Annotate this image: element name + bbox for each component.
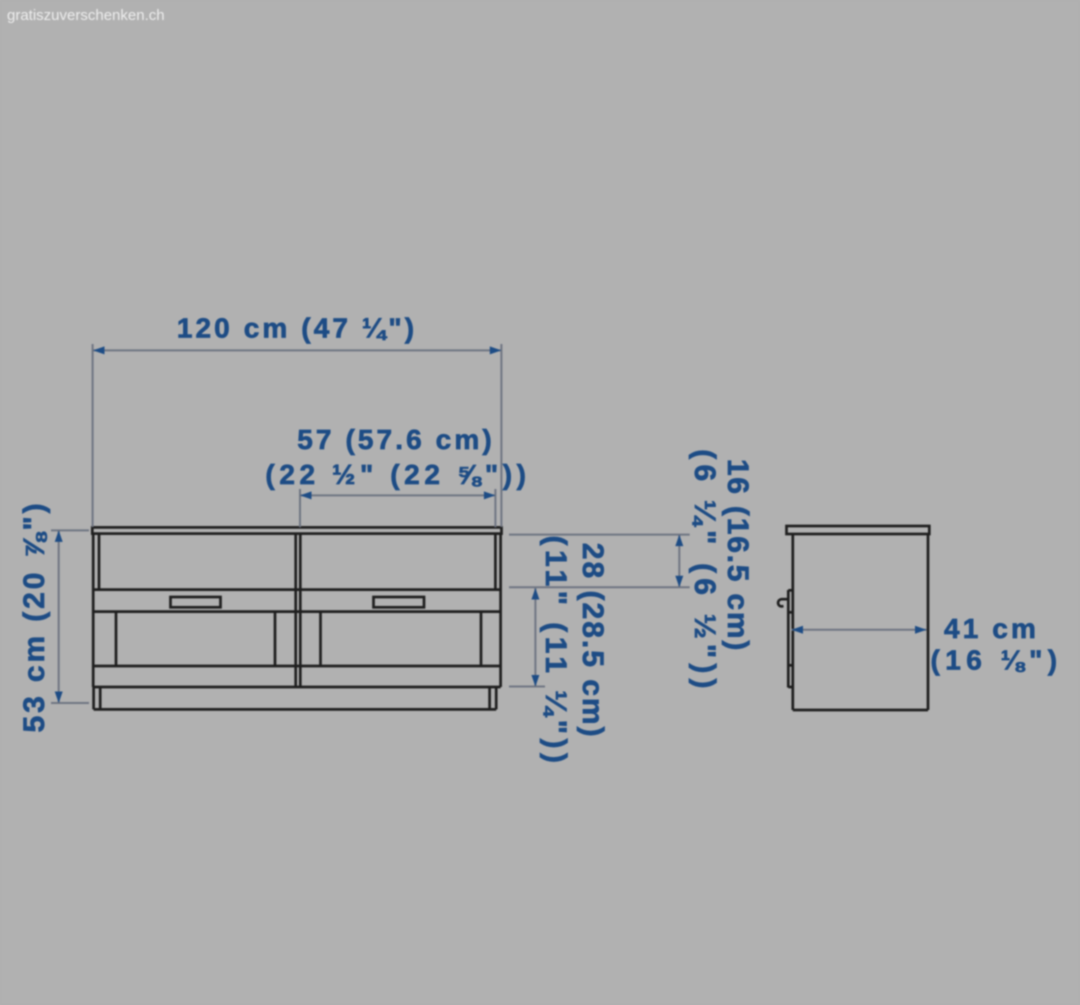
svg-text:41 cm: 41 cm <box>944 613 1039 644</box>
svg-text:120 cm (47 ¼"): 120 cm (47 ¼") <box>177 312 417 343</box>
svg-text:(6 ¼" (6 ½")): (6 ¼" (6 ½")) <box>688 449 721 693</box>
svg-text:16 (16.5 cm): 16 (16.5 cm) <box>721 459 754 652</box>
svg-text:53 cm (20 ⅞"): 53 cm (20 ⅞") <box>18 500 51 732</box>
svg-text:57 (57.6 cm): 57 (57.6 cm) <box>297 424 495 455</box>
svg-text:(22 ½" (22 ⅝")): (22 ½" (22 ⅝")) <box>265 459 530 490</box>
svg-text:gratiszuverschenken.ch: gratiszuverschenken.ch <box>7 7 165 24</box>
svg-text:28 (28.5 cm): 28 (28.5 cm) <box>576 543 609 739</box>
svg-text:(11" (11 ¼")): (11" (11 ¼")) <box>539 535 572 767</box>
svg-text:(16 ⅛"): (16 ⅛") <box>931 645 1063 676</box>
